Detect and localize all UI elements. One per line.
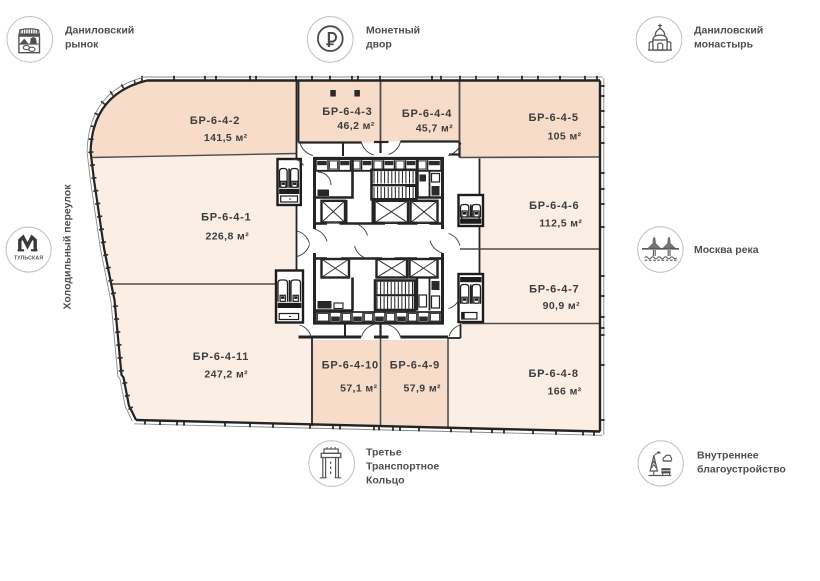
svg-text:Москва река: Москва река <box>694 244 759 256</box>
svg-text:двор: двор <box>366 39 392 51</box>
svg-text:Даниловский: Даниловский <box>65 25 134 37</box>
svg-text:рынок: рынок <box>65 39 99 51</box>
svg-text:БР-6-4-3: БР-6-4-3 <box>322 106 372 118</box>
svg-text:57,1 м²: 57,1 м² <box>340 383 378 395</box>
svg-text:БР-6-4-2: БР-6-4-2 <box>190 115 240 127</box>
svg-text:БР-6-4-8: БР-6-4-8 <box>529 368 579 380</box>
svg-text:БР-6-4-10: БР-6-4-10 <box>322 360 379 372</box>
svg-text:141,5 м²: 141,5 м² <box>204 132 248 144</box>
svg-text:Транспортное: Транспортное <box>366 461 439 473</box>
svg-text:Монетный: Монетный <box>366 25 420 37</box>
svg-text:БР-6-4-5: БР-6-4-5 <box>529 112 579 124</box>
svg-text:Холодильный переулок: Холодильный переулок <box>62 184 74 310</box>
svg-text:БР-6-4-4: БР-6-4-4 <box>402 108 452 120</box>
svg-text:Третье: Третье <box>366 447 402 459</box>
svg-text:46,2 м²: 46,2 м² <box>337 120 375 132</box>
svg-text:Кольцо: Кольцо <box>366 475 405 487</box>
svg-text:247,2 м²: 247,2 м² <box>204 369 248 381</box>
svg-text:ТУЛЬСКАЯ: ТУЛЬСКАЯ <box>14 256 43 262</box>
svg-text:Внутреннее: Внутреннее <box>697 450 759 462</box>
svg-text:57,9 м²: 57,9 м² <box>403 383 441 395</box>
svg-text:благоустройство: благоустройство <box>697 464 786 476</box>
svg-text:112,5 м²: 112,5 м² <box>539 218 582 230</box>
svg-text:БР-6-4-11: БР-6-4-11 <box>193 351 249 363</box>
svg-text:45,7 м²: 45,7 м² <box>416 123 454 135</box>
svg-text:Даниловский: Даниловский <box>694 25 763 37</box>
svg-text:105 м²: 105 м² <box>547 130 581 142</box>
svg-text:226,8 м²: 226,8 м² <box>205 231 249 243</box>
svg-text:монастырь: монастырь <box>694 39 754 51</box>
svg-text:90,9 м²: 90,9 м² <box>543 300 581 312</box>
svg-text:БР-6-4-7: БР-6-4-7 <box>529 283 579 295</box>
svg-text:БР-6-4-9: БР-6-4-9 <box>390 360 440 372</box>
svg-text:166 м²: 166 м² <box>548 385 582 397</box>
svg-text:БР-6-4-6: БР-6-4-6 <box>529 200 579 212</box>
svg-text:БР-6-4-1: БР-6-4-1 <box>201 211 251 223</box>
